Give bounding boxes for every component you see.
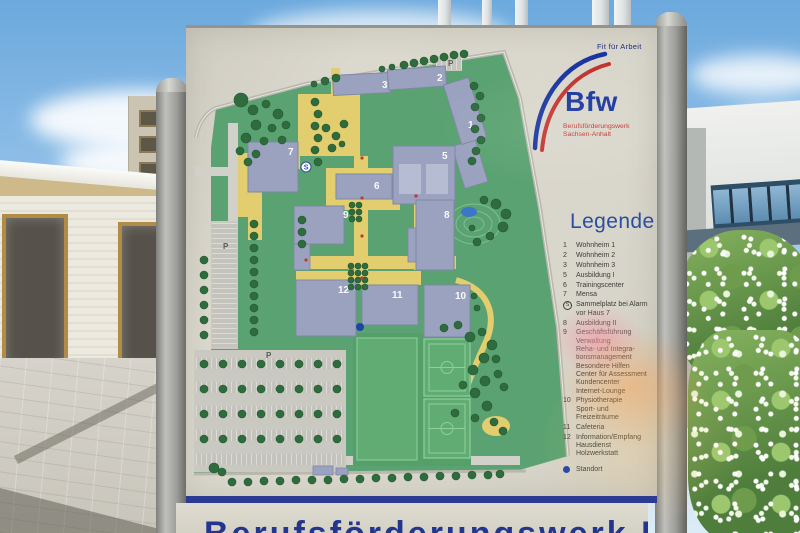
tree (200, 271, 208, 279)
tree (340, 120, 348, 128)
tree (250, 328, 258, 336)
tree (257, 385, 265, 393)
tree (314, 110, 322, 118)
tree (450, 51, 458, 59)
tree (200, 360, 208, 368)
tree (470, 82, 478, 90)
tree (311, 122, 319, 130)
tree (501, 209, 511, 219)
tree (454, 321, 462, 329)
sign-name-panel: Berufsförderungswerk Bfw (176, 503, 648, 533)
tree (260, 477, 268, 485)
legend-list: 1Wohnheim 12Wohnheim 23Wohnheim 35Ausbil… (563, 242, 655, 476)
tree (250, 292, 258, 300)
tree (492, 355, 500, 363)
tree (388, 474, 396, 482)
tree (250, 232, 258, 240)
building-number-3: 3 (382, 80, 388, 91)
tree (298, 240, 306, 248)
tree (436, 472, 444, 480)
tree (471, 125, 479, 133)
tree (472, 147, 480, 155)
tree (314, 410, 322, 418)
legend-item: 6Trainingscenter (563, 282, 655, 290)
tree (340, 475, 348, 483)
tree (295, 360, 303, 368)
legend-item: 8Ausbildung II (563, 320, 655, 328)
tree (490, 418, 498, 426)
tree (292, 476, 300, 484)
tree (228, 478, 236, 486)
tree (295, 385, 303, 393)
parking-label: P (266, 351, 272, 360)
bfw-logo: Fit für Arbeit Bfw Berufsförderungswerk … (521, 36, 653, 156)
tree (295, 410, 303, 418)
tree (333, 360, 341, 368)
logo-subtitle: Berufsförderungswerk Sachsen-Anhalt (563, 123, 630, 139)
tree (468, 157, 476, 165)
tree (200, 256, 208, 264)
tree (480, 196, 488, 204)
tree (298, 216, 306, 224)
window-pane (751, 186, 772, 221)
tree (219, 410, 227, 418)
tree (248, 105, 258, 115)
tree (487, 340, 497, 350)
legend-item: SSammelplatz bei Alarmvor Haus 7 (563, 301, 655, 318)
tree (471, 414, 479, 422)
pond (461, 207, 477, 217)
tree (372, 474, 380, 482)
tree (314, 134, 322, 142)
building-number-5: 5 (442, 151, 448, 162)
window-pane (789, 184, 800, 219)
tree (451, 409, 459, 417)
internal-road (195, 167, 229, 176)
tree (478, 328, 486, 336)
tree (440, 53, 448, 61)
tree (276, 435, 284, 443)
tree (219, 435, 227, 443)
building-courtyard (399, 164, 421, 194)
building-number-7: 7 (288, 147, 294, 158)
tree (257, 410, 265, 418)
tree (349, 202, 355, 208)
tree (348, 284, 354, 290)
standort-dot-icon (563, 466, 570, 473)
junction-dot (414, 194, 417, 197)
building-number-10: 10 (455, 291, 467, 302)
tree (473, 238, 481, 246)
tree (262, 100, 270, 108)
tree (234, 93, 248, 107)
standort-marker (356, 323, 364, 331)
tree (471, 293, 477, 299)
tree (452, 472, 460, 480)
tree (471, 103, 479, 111)
building-courtyard (426, 164, 448, 194)
legend-item: 10PhysiotherapieSport- undFreizeiträume (563, 397, 655, 422)
tree (356, 475, 364, 483)
tree (251, 120, 261, 130)
tree (273, 109, 283, 119)
tree (410, 59, 418, 67)
tree (200, 301, 208, 309)
building-6 (336, 174, 392, 199)
legend-item: 11Cafeteria (563, 424, 655, 432)
tree (268, 124, 276, 132)
building-number-6: 6 (374, 181, 380, 192)
tree (314, 158, 322, 166)
legend-item: 5Ausbildung I (563, 272, 655, 280)
standort-label: Standort (576, 466, 602, 474)
shadow (0, 488, 175, 533)
tree (219, 385, 227, 393)
window-pane (732, 188, 753, 223)
tree (469, 225, 475, 231)
annex-building (336, 468, 348, 475)
tree (244, 158, 252, 166)
tree (257, 360, 265, 368)
tree (496, 470, 504, 478)
tree (322, 124, 330, 132)
tree (311, 146, 319, 154)
annex-building (408, 228, 416, 262)
window-pane (770, 185, 791, 220)
legend-title: Legende (570, 210, 655, 234)
legend-item: 7Mensa (563, 291, 655, 299)
parking-stalls (196, 454, 344, 465)
tree (257, 435, 265, 443)
tree (356, 202, 362, 208)
tree (321, 77, 329, 85)
tree (200, 385, 208, 393)
tree (200, 316, 208, 324)
assembly-point-icon: S (563, 301, 572, 310)
tree (362, 263, 368, 269)
tree (477, 114, 485, 122)
tree (349, 209, 355, 215)
tree (308, 476, 316, 484)
tree (404, 473, 412, 481)
tree (200, 331, 208, 339)
tree (244, 478, 252, 486)
tree (459, 381, 467, 389)
tree (480, 376, 490, 386)
logo-tagline: Fit für Arbeit (597, 42, 642, 51)
tree (499, 427, 507, 435)
tree (276, 385, 284, 393)
tree (348, 270, 354, 276)
tree (314, 435, 322, 443)
tree (379, 66, 385, 72)
tree (250, 268, 258, 276)
window-pane (713, 189, 734, 224)
tree (333, 385, 341, 393)
tree (476, 92, 484, 100)
sign-post-right (655, 26, 687, 533)
tree (482, 401, 492, 411)
tree (218, 468, 226, 476)
right-building-window-band (711, 179, 800, 230)
tree (468, 365, 478, 375)
tree (332, 74, 340, 82)
site-map: 32175698121110PPPS (186, 28, 576, 500)
logo-subtitle-line2: Sachsen-Anhalt (563, 131, 630, 139)
junction-dot (360, 196, 363, 199)
tree (479, 353, 489, 363)
tree (486, 232, 494, 240)
tree (460, 50, 468, 58)
building-number-11: 11 (392, 290, 403, 301)
tree (282, 121, 290, 129)
tree (260, 137, 268, 145)
tree (238, 385, 246, 393)
left-building-window (2, 214, 68, 370)
tree (494, 370, 502, 378)
tree (250, 304, 258, 312)
building-11 (362, 285, 418, 325)
assembly-point-letter: S (304, 165, 309, 172)
tree (250, 244, 258, 252)
tree (250, 256, 258, 264)
sign-blue-band (186, 496, 657, 503)
internal-road (228, 123, 238, 235)
building-number-9: 9 (343, 210, 349, 221)
tree (278, 136, 286, 144)
tree (276, 410, 284, 418)
tree (298, 228, 306, 236)
tree (250, 316, 258, 324)
building-9 (294, 206, 344, 244)
tree (355, 277, 361, 283)
legend-item: 12Information/EmpfangHausdienstHolzwerks… (563, 434, 655, 459)
tree (250, 220, 258, 228)
tree (362, 270, 368, 276)
building-number-2: 2 (437, 73, 443, 84)
annex-building (313, 466, 333, 475)
tree (362, 284, 368, 290)
parking-label: P (448, 59, 454, 68)
tree (348, 277, 354, 283)
tree (355, 284, 361, 290)
legend-item: 9GeschäftsführungVerwaltungReha- und Int… (563, 329, 655, 395)
tree (311, 81, 317, 87)
tree (348, 263, 354, 269)
tree (356, 216, 362, 222)
tree (324, 476, 332, 484)
tree (200, 286, 208, 294)
sign-post-left (156, 92, 188, 533)
tree (470, 388, 480, 398)
tree (276, 477, 284, 485)
tree (468, 471, 476, 479)
tree (238, 360, 246, 368)
tree (314, 385, 322, 393)
logo-brand: Bfw (565, 86, 618, 118)
tree (465, 332, 475, 342)
tree (314, 360, 322, 368)
tree (355, 263, 361, 269)
tree (241, 133, 251, 143)
sports-pitch (357, 338, 417, 460)
tree (484, 471, 492, 479)
legend-standort-row: Standort (563, 466, 655, 474)
tree (332, 132, 340, 140)
tree (420, 473, 428, 481)
tree (349, 216, 355, 222)
tree (389, 64, 395, 70)
tree (477, 136, 485, 144)
junction-dot (360, 234, 363, 237)
tree (209, 463, 219, 473)
tree (400, 61, 408, 69)
tree (474, 305, 480, 311)
tree (295, 435, 303, 443)
tree (500, 383, 508, 391)
tree (498, 222, 508, 232)
flowering-bush (688, 330, 800, 533)
tree (333, 435, 341, 443)
tree (250, 280, 258, 288)
tree (420, 57, 428, 65)
tree (339, 141, 345, 147)
photo-of-campus-map-sign: 32175698121110PPPS Fit für Arbeit Bfw Be… (0, 0, 800, 533)
tree (252, 150, 260, 158)
junction-dot (304, 258, 307, 261)
sign-name-text: Berufsförderungswerk Bfw (204, 515, 648, 533)
parking-label: P (223, 242, 229, 251)
logo-subtitle-line1: Berufsförderungswerk (563, 123, 630, 131)
tree (200, 410, 208, 418)
tree (236, 147, 244, 155)
tree (333, 410, 341, 418)
tree (356, 209, 362, 215)
legend-item: 3Wohnheim 3 (563, 262, 655, 270)
junction-dot (360, 276, 363, 279)
tree (200, 435, 208, 443)
tree (311, 98, 319, 106)
tree (491, 199, 501, 209)
tree (440, 324, 448, 332)
tree (328, 144, 336, 152)
building-number-8: 8 (444, 210, 450, 221)
tree (238, 410, 246, 418)
tree (238, 435, 246, 443)
junction-dot (360, 156, 363, 159)
tree (276, 360, 284, 368)
tree (219, 360, 227, 368)
legend-item: 1Wohnheim 1 (563, 242, 655, 250)
legend-item: 2Wohnheim 2 (563, 252, 655, 260)
tree (355, 270, 361, 276)
campus-map-sign-panel: 32175698121110PPPS Fit für Arbeit Bfw Be… (186, 25, 657, 500)
tree (430, 55, 438, 63)
